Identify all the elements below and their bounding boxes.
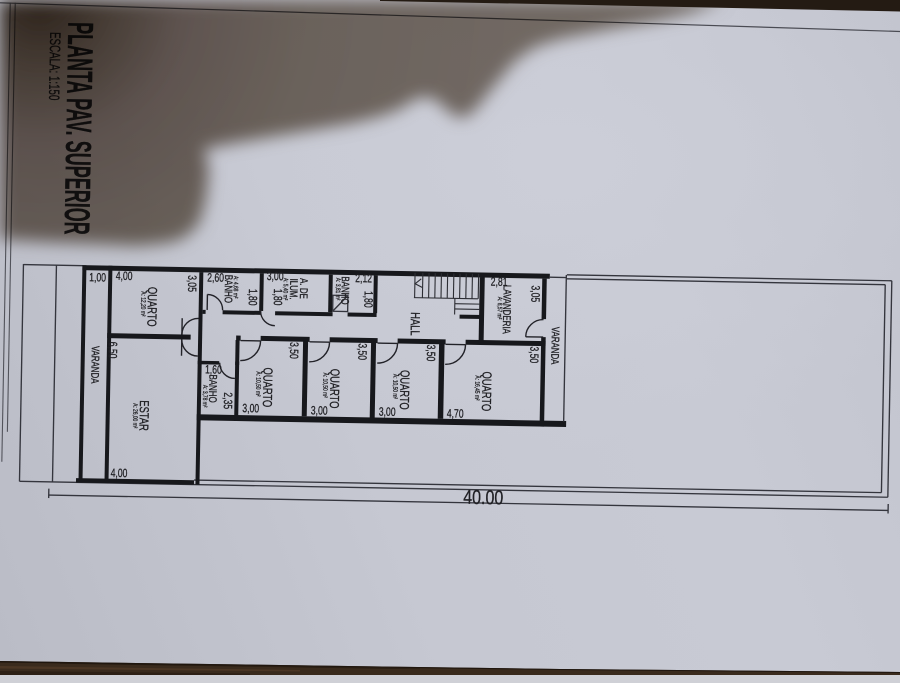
svg-text:A: 16,45 m²: A: 16,45 m² [473, 375, 480, 400]
svg-text:A: 10,50 m²: A: 10,50 m² [254, 371, 261, 396]
svg-text:2,12: 2,12 [355, 273, 372, 286]
svg-text:A: 3,78 m²: A: 3,78 m² [201, 385, 208, 408]
svg-text:A: 12,20 m²: A: 12,20 m² [139, 291, 146, 316]
svg-text:3,00: 3,00 [311, 405, 328, 418]
svg-text:3,50: 3,50 [287, 342, 300, 359]
svg-text:A: 10,50 m²: A: 10,50 m² [321, 373, 328, 398]
svg-text:3,00: 3,00 [379, 406, 396, 419]
svg-text:A: 8,57 m²: A: 8,57 m² [495, 297, 502, 320]
svg-text:4,70: 4,70 [447, 408, 464, 421]
svg-text:3,50: 3,50 [527, 346, 540, 363]
svg-text:3,00: 3,00 [242, 403, 259, 416]
svg-text:A: 3,81 m²: A: 3,81 m² [334, 278, 341, 301]
svg-text:3,05: 3,05 [185, 275, 198, 292]
svg-text:1,00: 1,00 [89, 272, 106, 285]
svg-text:ESCALA: 1:150: ESCALA: 1:150 [45, 32, 63, 101]
svg-text:A: 5,40 m²: A: 5,40 m² [281, 278, 288, 301]
svg-text:VARANDA: VARANDA [88, 346, 101, 384]
svg-text:2,35: 2,35 [220, 392, 233, 409]
svg-text:1,80: 1,80 [361, 291, 374, 308]
svg-text:3,50: 3,50 [423, 344, 436, 361]
svg-text:VARANDA: VARANDA [548, 327, 561, 365]
svg-text:HALL: HALL [407, 312, 421, 336]
svg-text:3,00: 3,00 [267, 271, 284, 284]
svg-text:1,80: 1,80 [245, 289, 258, 306]
svg-text:3,50: 3,50 [355, 343, 368, 360]
svg-text:A: 10,50 m²: A: 10,50 m² [391, 374, 398, 399]
svg-text:3,05: 3,05 [528, 285, 541, 302]
svg-text:A: 26,00 m²: A: 26,00 m² [131, 403, 138, 428]
svg-text:A: 4,68 m²: A: 4,68 m² [231, 276, 238, 299]
svg-text:4,00: 4,00 [116, 271, 133, 284]
svg-text:6,50: 6,50 [105, 342, 118, 359]
svg-text:40.00: 40.00 [463, 486, 503, 509]
svg-text:4,00: 4,00 [111, 468, 128, 481]
